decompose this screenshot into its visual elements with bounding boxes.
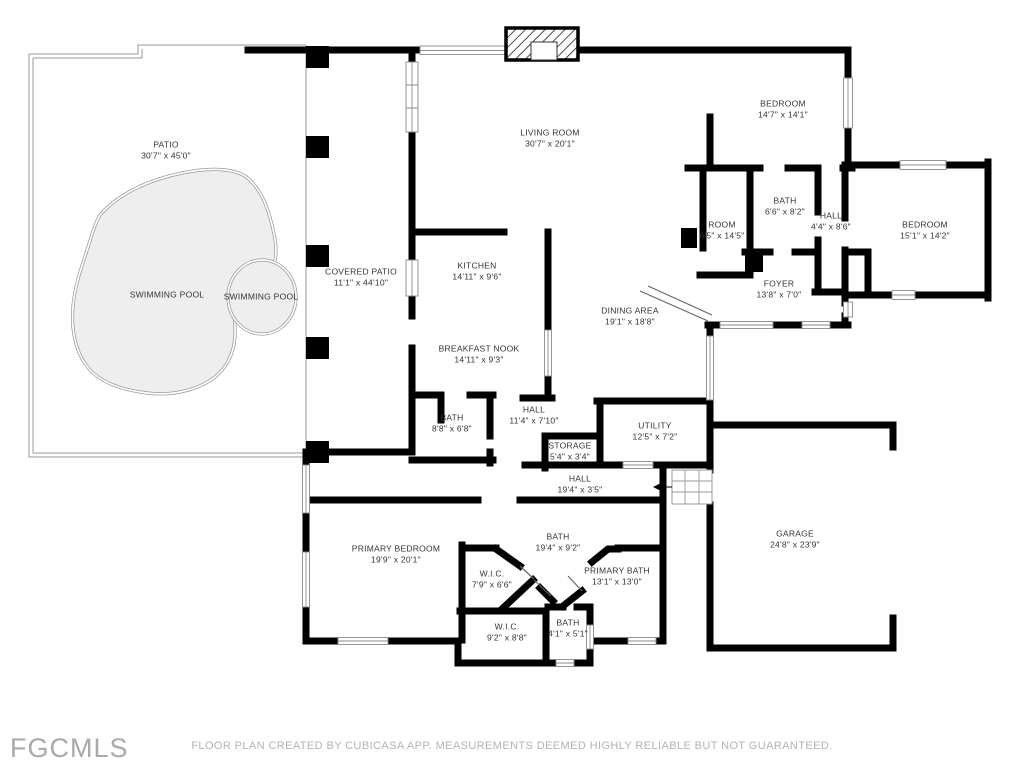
- cubicasa-disclaimer: FLOOR PLAN CREATED BY CUBICASA APP. MEAS…: [0, 740, 1024, 752]
- room-name: W.I.C.: [487, 622, 527, 633]
- fireplace-icon: [506, 28, 578, 60]
- room-dims: 13'8" x 7'0": [757, 290, 802, 301]
- room-name: BATH: [548, 618, 588, 629]
- room-label-bedroom-right: BEDROOM 15'1" x 14'2": [900, 220, 950, 243]
- room-label-wic-upper: W.I.C. 7'9" x 6'6": [472, 569, 512, 592]
- swimming-pool-shape: [73, 169, 296, 393]
- room-dims: 6'5" x 14'5": [700, 231, 745, 242]
- room-label-hall-lower: HALL 19'4" x 3'5": [558, 474, 603, 497]
- room-label-dining-area: DINING AREA 19'1" x 18'8": [601, 306, 659, 329]
- room-label-bedroom-top: BEDROOM 14'7" x 14'1": [758, 99, 808, 122]
- room-dims: 4'1" x 5'1": [548, 629, 588, 640]
- room-name: BREAKFAST NOOK: [439, 344, 520, 355]
- room-label-bath-long: BATH 19'4" x 9'2": [536, 532, 581, 555]
- room-label-room: ROOM 6'5" x 14'5": [700, 220, 745, 243]
- room-label-bath-middle: BATH 8'8" x 6'8": [432, 413, 472, 436]
- room-dims: 7'9" x 6'6": [472, 580, 512, 591]
- room-label-bath-top: BATH 6'6" x 8'2": [765, 196, 805, 219]
- room-dims: 30'7" x 20'1": [520, 139, 579, 150]
- room-name: BEDROOM: [758, 99, 808, 110]
- room-dims: 4'4" x 8'6": [811, 222, 851, 233]
- room-label-utility: UTILITY 12'5" x 7'2": [633, 421, 678, 444]
- room-label-primary-bath: PRIMARY BATH 13'1" x 13'0": [584, 566, 650, 589]
- room-dims: 14'11" x 9'3": [439, 355, 520, 366]
- room-label-foyer: FOYER 13'8" x 7'0": [757, 279, 802, 302]
- room-label-swimming-pool: SWIMMING POOL: [130, 289, 205, 300]
- floorplan-drawing: [0, 0, 1024, 768]
- room-name: BEDROOM: [900, 220, 950, 231]
- room-dims: 8'8" x 6'8": [432, 424, 472, 435]
- room-dims: 11'1" x 44'10": [325, 278, 397, 289]
- room-dims: 19'4" x 9'2": [536, 543, 581, 554]
- room-name: UTILITY: [633, 421, 678, 432]
- room-dims: 19'1" x 18'8": [601, 317, 659, 328]
- room-name: BATH: [432, 413, 472, 424]
- room-name: FOYER: [757, 279, 802, 290]
- room-dims: 14'11" x 9'6": [452, 272, 501, 283]
- room-label-bath-small: BATH 4'1" x 5'1": [548, 618, 588, 641]
- room-name: PATIO: [141, 140, 191, 151]
- room-dims: 19'4" x 3'5": [558, 485, 603, 496]
- room-dims: 5'4" x 3'4": [548, 452, 591, 463]
- room-name: PRIMARY BEDROOM: [352, 544, 440, 555]
- room-name: STORAGE: [548, 441, 591, 452]
- room-name: COVERED PATIO: [325, 267, 397, 278]
- room-name: KITCHEN: [452, 261, 501, 272]
- room-label-wic-lower: W.I.C. 9'2" x 8'8": [487, 622, 527, 645]
- room-name: ROOM: [700, 220, 745, 231]
- room-dims: 19'9" x 20'1": [352, 555, 440, 566]
- room-dims: 6'6" x 8'2": [765, 207, 805, 218]
- room-label-storage: STORAGE 5'4" x 3'4": [548, 441, 591, 464]
- room-label-hall-small: HALL 4'4" x 8'6": [811, 211, 851, 234]
- room-name: BATH: [765, 196, 805, 207]
- room-name: GARAGE: [770, 529, 820, 540]
- room-name: LIVING ROOM: [520, 128, 579, 139]
- room-label-covered-patio: COVERED PATIO 11'1" x 44'10": [325, 267, 397, 290]
- room-dims: 11'4" x 7'10": [509, 416, 558, 427]
- patio-pillars: [306, 46, 329, 463]
- room-name: W.I.C.: [472, 569, 512, 580]
- room-label-primary-bedroom: PRIMARY BEDROOM 19'9" x 20'1": [352, 544, 440, 567]
- room-name: BATH: [536, 532, 581, 543]
- room-dims: 12'5" x 7'2": [633, 432, 678, 443]
- room-dims: 14'7" x 14'1": [758, 110, 808, 121]
- room-label-breakfast-nook: BREAKFAST NOOK 14'11" x 9'3": [439, 344, 520, 367]
- room-dims: 24'8" x 23'9": [770, 540, 820, 551]
- room-label-living-room: LIVING ROOM 30'7" x 20'1": [520, 128, 579, 151]
- floorplan-page: PATIO 30'7" x 45'0" SWIMMING POOL SWIMMI…: [0, 0, 1024, 768]
- room-name: SWIMMING POOL: [224, 291, 299, 302]
- room-dims: 9'2" x 8'8": [487, 633, 527, 644]
- room-dims: 30'7" x 45'0": [141, 151, 191, 162]
- room-name: PRIMARY BATH: [584, 566, 650, 577]
- room-name: DINING AREA: [601, 306, 659, 317]
- room-name: HALL: [811, 211, 851, 222]
- room-dims: 13'1" x 13'0": [584, 577, 650, 588]
- room-label-kitchen: KITCHEN 14'11" x 9'6": [452, 261, 501, 284]
- room-label-swimming-pool-small: SWIMMING POOL: [224, 291, 299, 302]
- room-name: HALL: [558, 474, 603, 485]
- room-name: HALL: [509, 405, 558, 416]
- room-label-hall-middle: HALL 11'4" x 7'10": [509, 405, 558, 428]
- room-dims: 15'1" x 14'2": [900, 231, 950, 242]
- room-label-patio: PATIO 30'7" x 45'0": [141, 140, 191, 163]
- room-label-garage: GARAGE 24'8" x 23'9": [770, 529, 820, 552]
- room-name: SWIMMING POOL: [130, 289, 205, 300]
